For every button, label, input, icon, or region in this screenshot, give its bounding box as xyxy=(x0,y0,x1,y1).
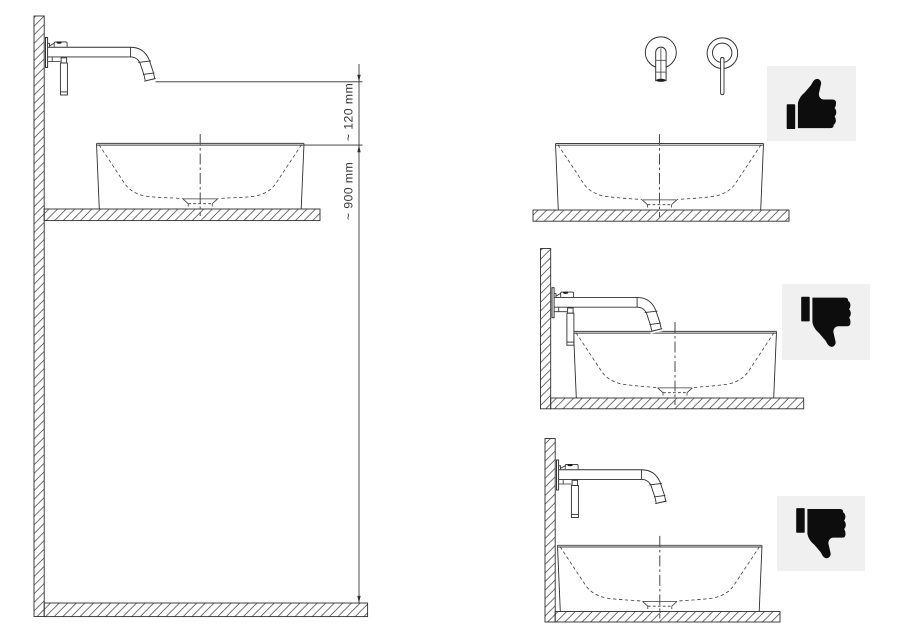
svg-text:~ 900 mm: ~ 900 mm xyxy=(342,162,356,220)
svg-text:~ 120 mm: ~ 120 mm xyxy=(342,83,356,141)
